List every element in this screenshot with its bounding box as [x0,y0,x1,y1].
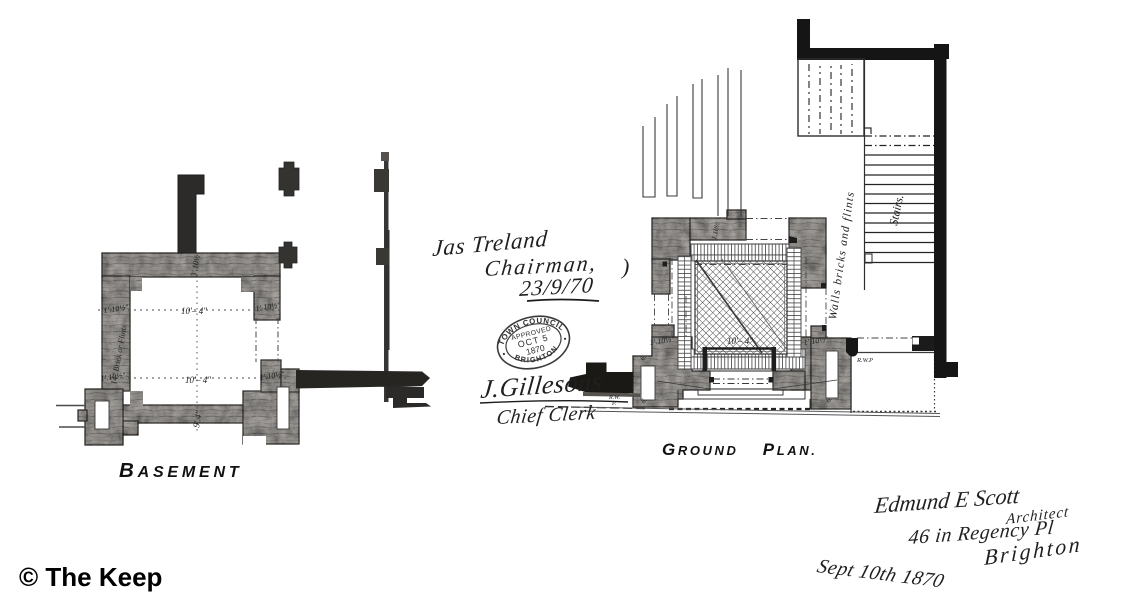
svg-text:10′– 4″: 10′– 4″ [181,306,207,316]
svg-text:23/9/70: 23/9/70 [518,272,595,301]
svg-text:): ) [620,254,629,279]
svg-text:P.: P. [611,401,616,407]
svg-text:R.W.P: R.W.P [856,357,873,364]
svg-text:10′– 4″: 10′– 4″ [727,336,753,346]
svg-text:© The Keep: © The Keep [19,562,162,592]
svg-text:10′– 4″: 10′– 4″ [185,375,211,385]
